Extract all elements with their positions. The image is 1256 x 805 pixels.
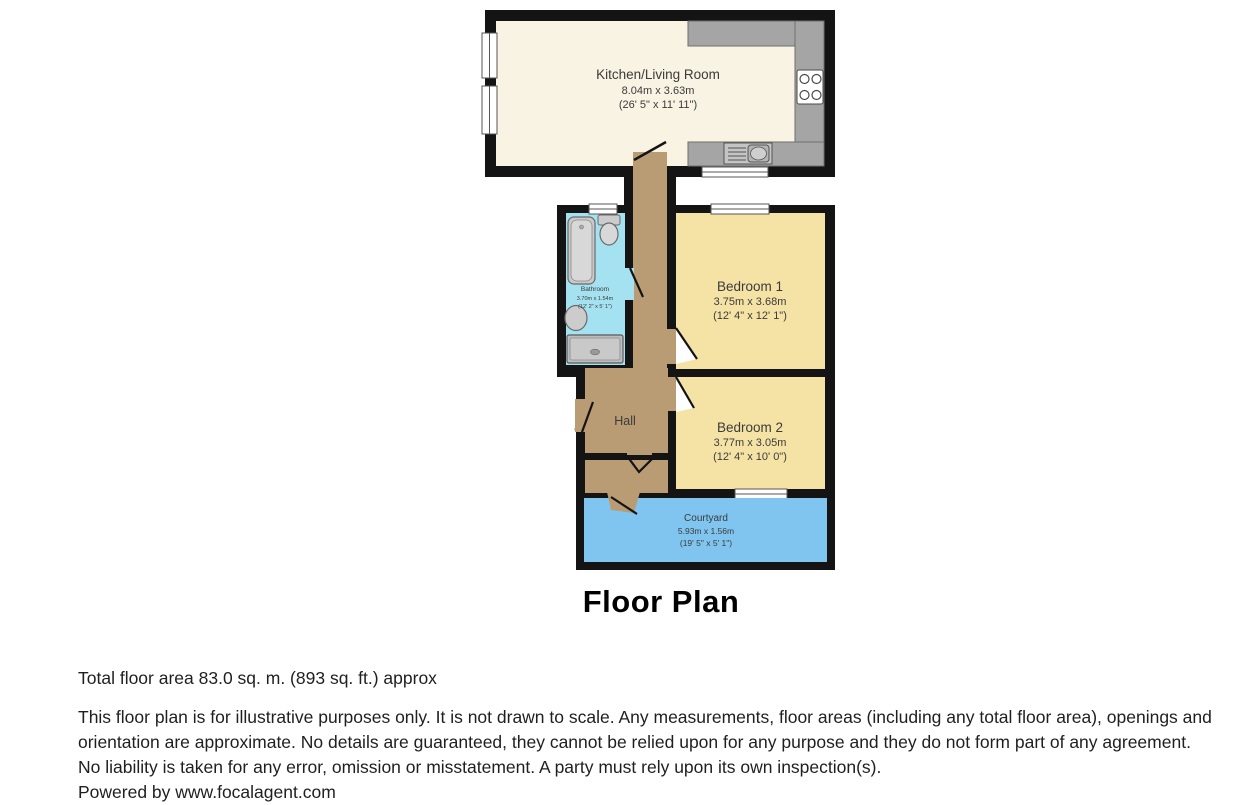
kitchen-window-left-1 (482, 33, 497, 78)
bedroom1-window (711, 204, 769, 214)
bathroom-metric: 3.70m x 1.54m (577, 296, 614, 302)
bathroom-imperial: (12' 2" x 5' 1") (578, 304, 612, 310)
bedroom1-metric: 3.75m x 3.68m (714, 296, 787, 308)
kitchen-label: Kitchen/Living Room (596, 67, 720, 82)
bedroom2-window (735, 489, 787, 499)
bedroom1-label: Bedroom 1 (717, 279, 783, 294)
disclaimer-text: This floor plan is for illustrative purp… (78, 705, 1218, 780)
courtyard-imperial: (19' 5" x 5' 1") (680, 538, 732, 548)
washing-machine-icon (567, 335, 623, 363)
hall-floor (585, 368, 668, 455)
hob-icon (797, 70, 823, 104)
bedroom2-metric: 3.77m x 3.05m (714, 437, 787, 449)
kitchen-sink-icon (724, 143, 772, 164)
courtyard: Courtyard 5.93m x 1.56m (19' 5" x 5' 1") (584, 492, 827, 562)
kitchen-window-bottom (702, 167, 768, 177)
total-floor-area: Total floor area 83.0 sq. m. (893 sq. ft… (78, 666, 1218, 691)
bedroom2-imperial: (12' 4" x 10' 0") (713, 451, 787, 463)
bedroom2-label: Bedroom 2 (717, 420, 783, 435)
bedroom2-door-opening (667, 377, 676, 411)
floor-plan-drawing: Kitchen/Living Room 8.04m x 3.63m (26' 5… (0, 0, 1256, 645)
corridor-floor (633, 152, 667, 376)
kitchen-metric: 8.04m x 3.63m (622, 85, 695, 97)
bedroom-1: Bedroom 1 3.75m x 3.68m (12' 4" x 12' 1"… (667, 204, 825, 369)
kitchen-window-left-2 (482, 86, 497, 134)
courtyard-label: Courtyard (684, 513, 728, 524)
kitchen-imperial: (26' 5" x 11' 11") (619, 99, 697, 111)
bedroom1-imperial: (12' 4" x 12' 1") (713, 310, 787, 322)
corridor-wall-left (624, 166, 633, 213)
corridor-wall-right (667, 166, 676, 213)
bathtub-icon (568, 217, 595, 284)
hall-label: Hall (614, 414, 636, 428)
hall-inner-wall-left (580, 453, 627, 460)
plan-title: Floor Plan (485, 584, 837, 620)
hall-vestibule-floor (585, 460, 668, 493)
bedroom1-door-opening (667, 329, 676, 364)
footer: Total floor area 83.0 sq. m. (893 sq. ft… (78, 666, 1218, 805)
kitchen-living-room: Kitchen/Living Room 8.04m x 3.63m (26' 5… (482, 10, 835, 177)
bedroom-2: Bedroom 2 3.77m x 3.05m (12' 4" x 10' 0"… (667, 377, 825, 499)
hall-inner-wall-right (652, 453, 676, 460)
bathroom-window (589, 204, 617, 214)
powered-by-text: Powered by www.focalagent.com (78, 780, 1218, 805)
courtyard-metric: 5.93m x 1.56m (678, 526, 734, 536)
bathroom-label: Bathroom (581, 286, 609, 293)
toilet-icon (598, 215, 620, 245)
